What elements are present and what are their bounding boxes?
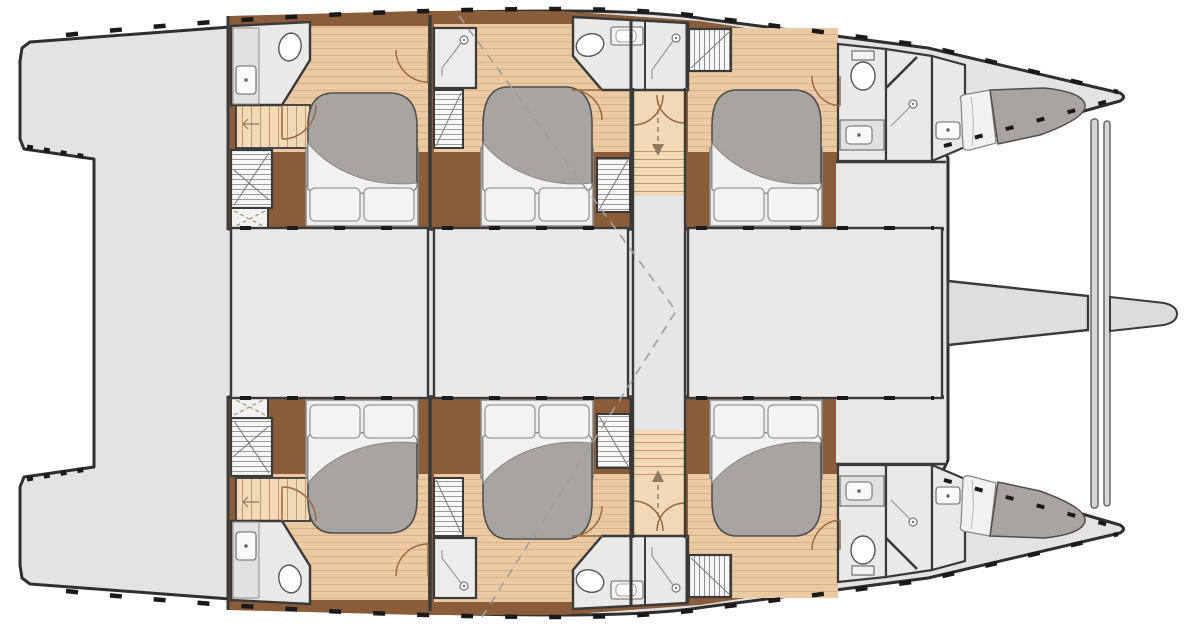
crossbeam-bar [1091,119,1098,508]
forward-beam [948,281,1088,345]
catamaran-floorplan [0,0,1186,626]
bowsprit [1110,297,1177,331]
floorplan-svg [0,0,1186,626]
saloon-blocks [231,228,942,398]
bow-structure [948,119,1177,508]
